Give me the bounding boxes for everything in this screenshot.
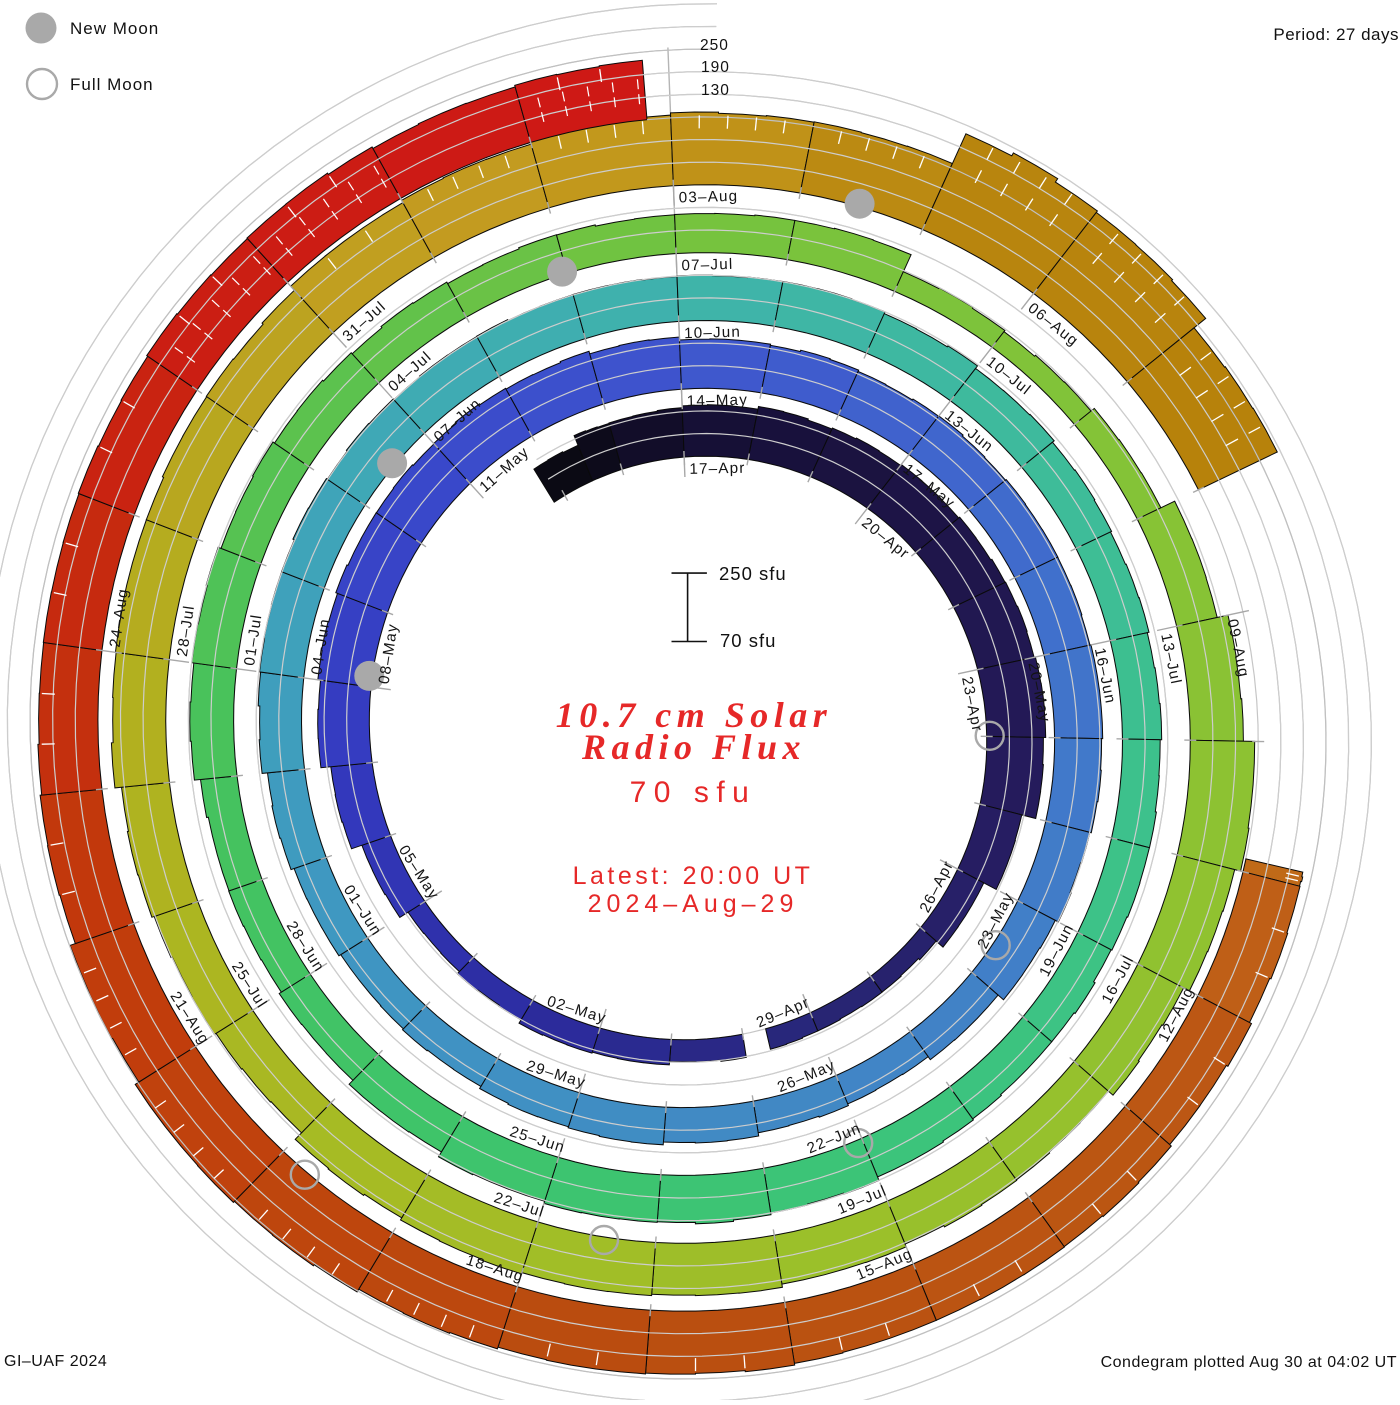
svg-text:2024–Aug–29: 2024–Aug–29 — [588, 890, 799, 918]
svg-text:GI–UAF 2024: GI–UAF 2024 — [4, 1353, 107, 1370]
svg-text:70 sfu: 70 sfu — [630, 776, 757, 809]
svg-text:14–May: 14–May — [687, 392, 749, 410]
svg-text:Full Moon: Full Moon — [70, 75, 154, 94]
svg-text:Condegram plotted Aug 30 at 04: Condegram plotted Aug 30 at 04:02 UT — [1101, 1354, 1397, 1371]
svg-text:Radio Flux: Radio Flux — [581, 727, 806, 767]
svg-text:190: 190 — [701, 59, 730, 76]
svg-text:250: 250 — [700, 37, 729, 54]
svg-text:10–Jun: 10–Jun — [684, 324, 741, 343]
svg-text:07–Jul: 07–Jul — [681, 256, 733, 275]
svg-text:70 sfu: 70 sfu — [720, 630, 776, 651]
svg-text:250 sfu: 250 sfu — [719, 563, 787, 584]
svg-text:Latest: 20:00 UT: Latest: 20:00 UT — [573, 862, 814, 890]
svg-text:New Moon: New Moon — [70, 19, 159, 38]
svg-text:130: 130 — [701, 82, 730, 99]
svg-text:Period: 27 days: Period: 27 days — [1273, 25, 1399, 44]
svg-text:17–Apr: 17–Apr — [689, 460, 746, 478]
svg-text:03–Aug: 03–Aug — [679, 188, 739, 207]
